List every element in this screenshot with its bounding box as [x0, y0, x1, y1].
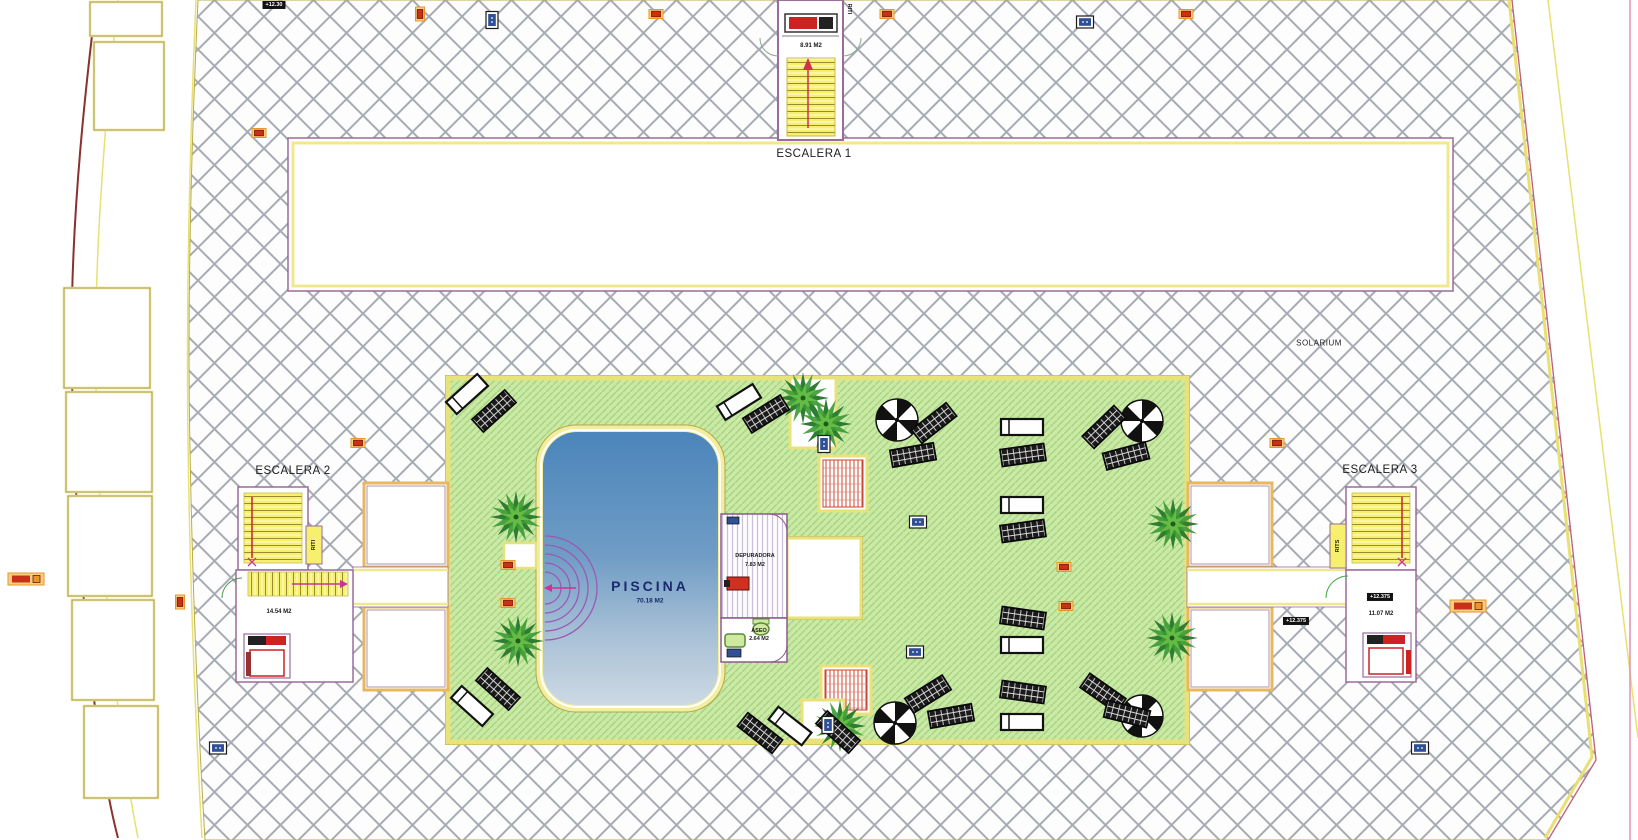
elevator-symbol — [244, 634, 290, 678]
sink-symbol — [725, 634, 745, 647]
level-marker-top-left: +12.30 — [263, 1, 286, 9]
piscina-label: PISCINA — [611, 578, 689, 594]
pump-symbol — [727, 577, 749, 590]
building-strip — [288, 138, 1453, 291]
elevator-symbol — [1363, 633, 1411, 677]
rits-esc3-label: RITS — [1335, 540, 1341, 553]
depuradora-area: 7.83 M2 — [745, 562, 765, 568]
parasol-icon — [1121, 400, 1163, 442]
pergola-top — [819, 456, 867, 511]
parasol-icon — [874, 702, 916, 744]
escalera3-area: 11.07 M2 — [1369, 611, 1394, 617]
escalera2-area: 14.54 M2 — [266, 609, 291, 615]
swimming-pool — [536, 425, 725, 712]
floor-plan: ESCALERA 1 8.91 M2 RITI ESCALERA 2 14.54… — [0, 0, 1638, 840]
riti-esc2-label: RITI — [311, 540, 317, 550]
riti-top-label: RITI — [846, 4, 852, 14]
level-marker-esc3: +12.375 — [1367, 593, 1393, 601]
left-balconies — [64, 2, 164, 798]
level-marker-esc3-walkway: +12.375 — [1283, 617, 1309, 625]
site-boundary-left — [64, 0, 202, 838]
depuradora-label: DEPURADORA — [735, 553, 774, 559]
escalera3-label: ESCALERA 3 — [1342, 464, 1417, 476]
escalera2-label: ESCALERA 2 — [255, 465, 330, 477]
escalera1-label: ESCALERA 1 — [776, 148, 851, 160]
parasol-icon — [876, 399, 918, 441]
aseo-label: ASEO — [751, 628, 767, 634]
piscina-area: 70.18 M2 — [636, 598, 663, 605]
aseo-area: 2.64 M2 — [749, 636, 769, 642]
escalera1-area: 8.91 M2 — [800, 43, 822, 49]
patio-slab — [786, 537, 863, 620]
floor-plan-canvas — [0, 0, 1638, 840]
solarium-label: SOLARIUM — [1296, 339, 1342, 348]
